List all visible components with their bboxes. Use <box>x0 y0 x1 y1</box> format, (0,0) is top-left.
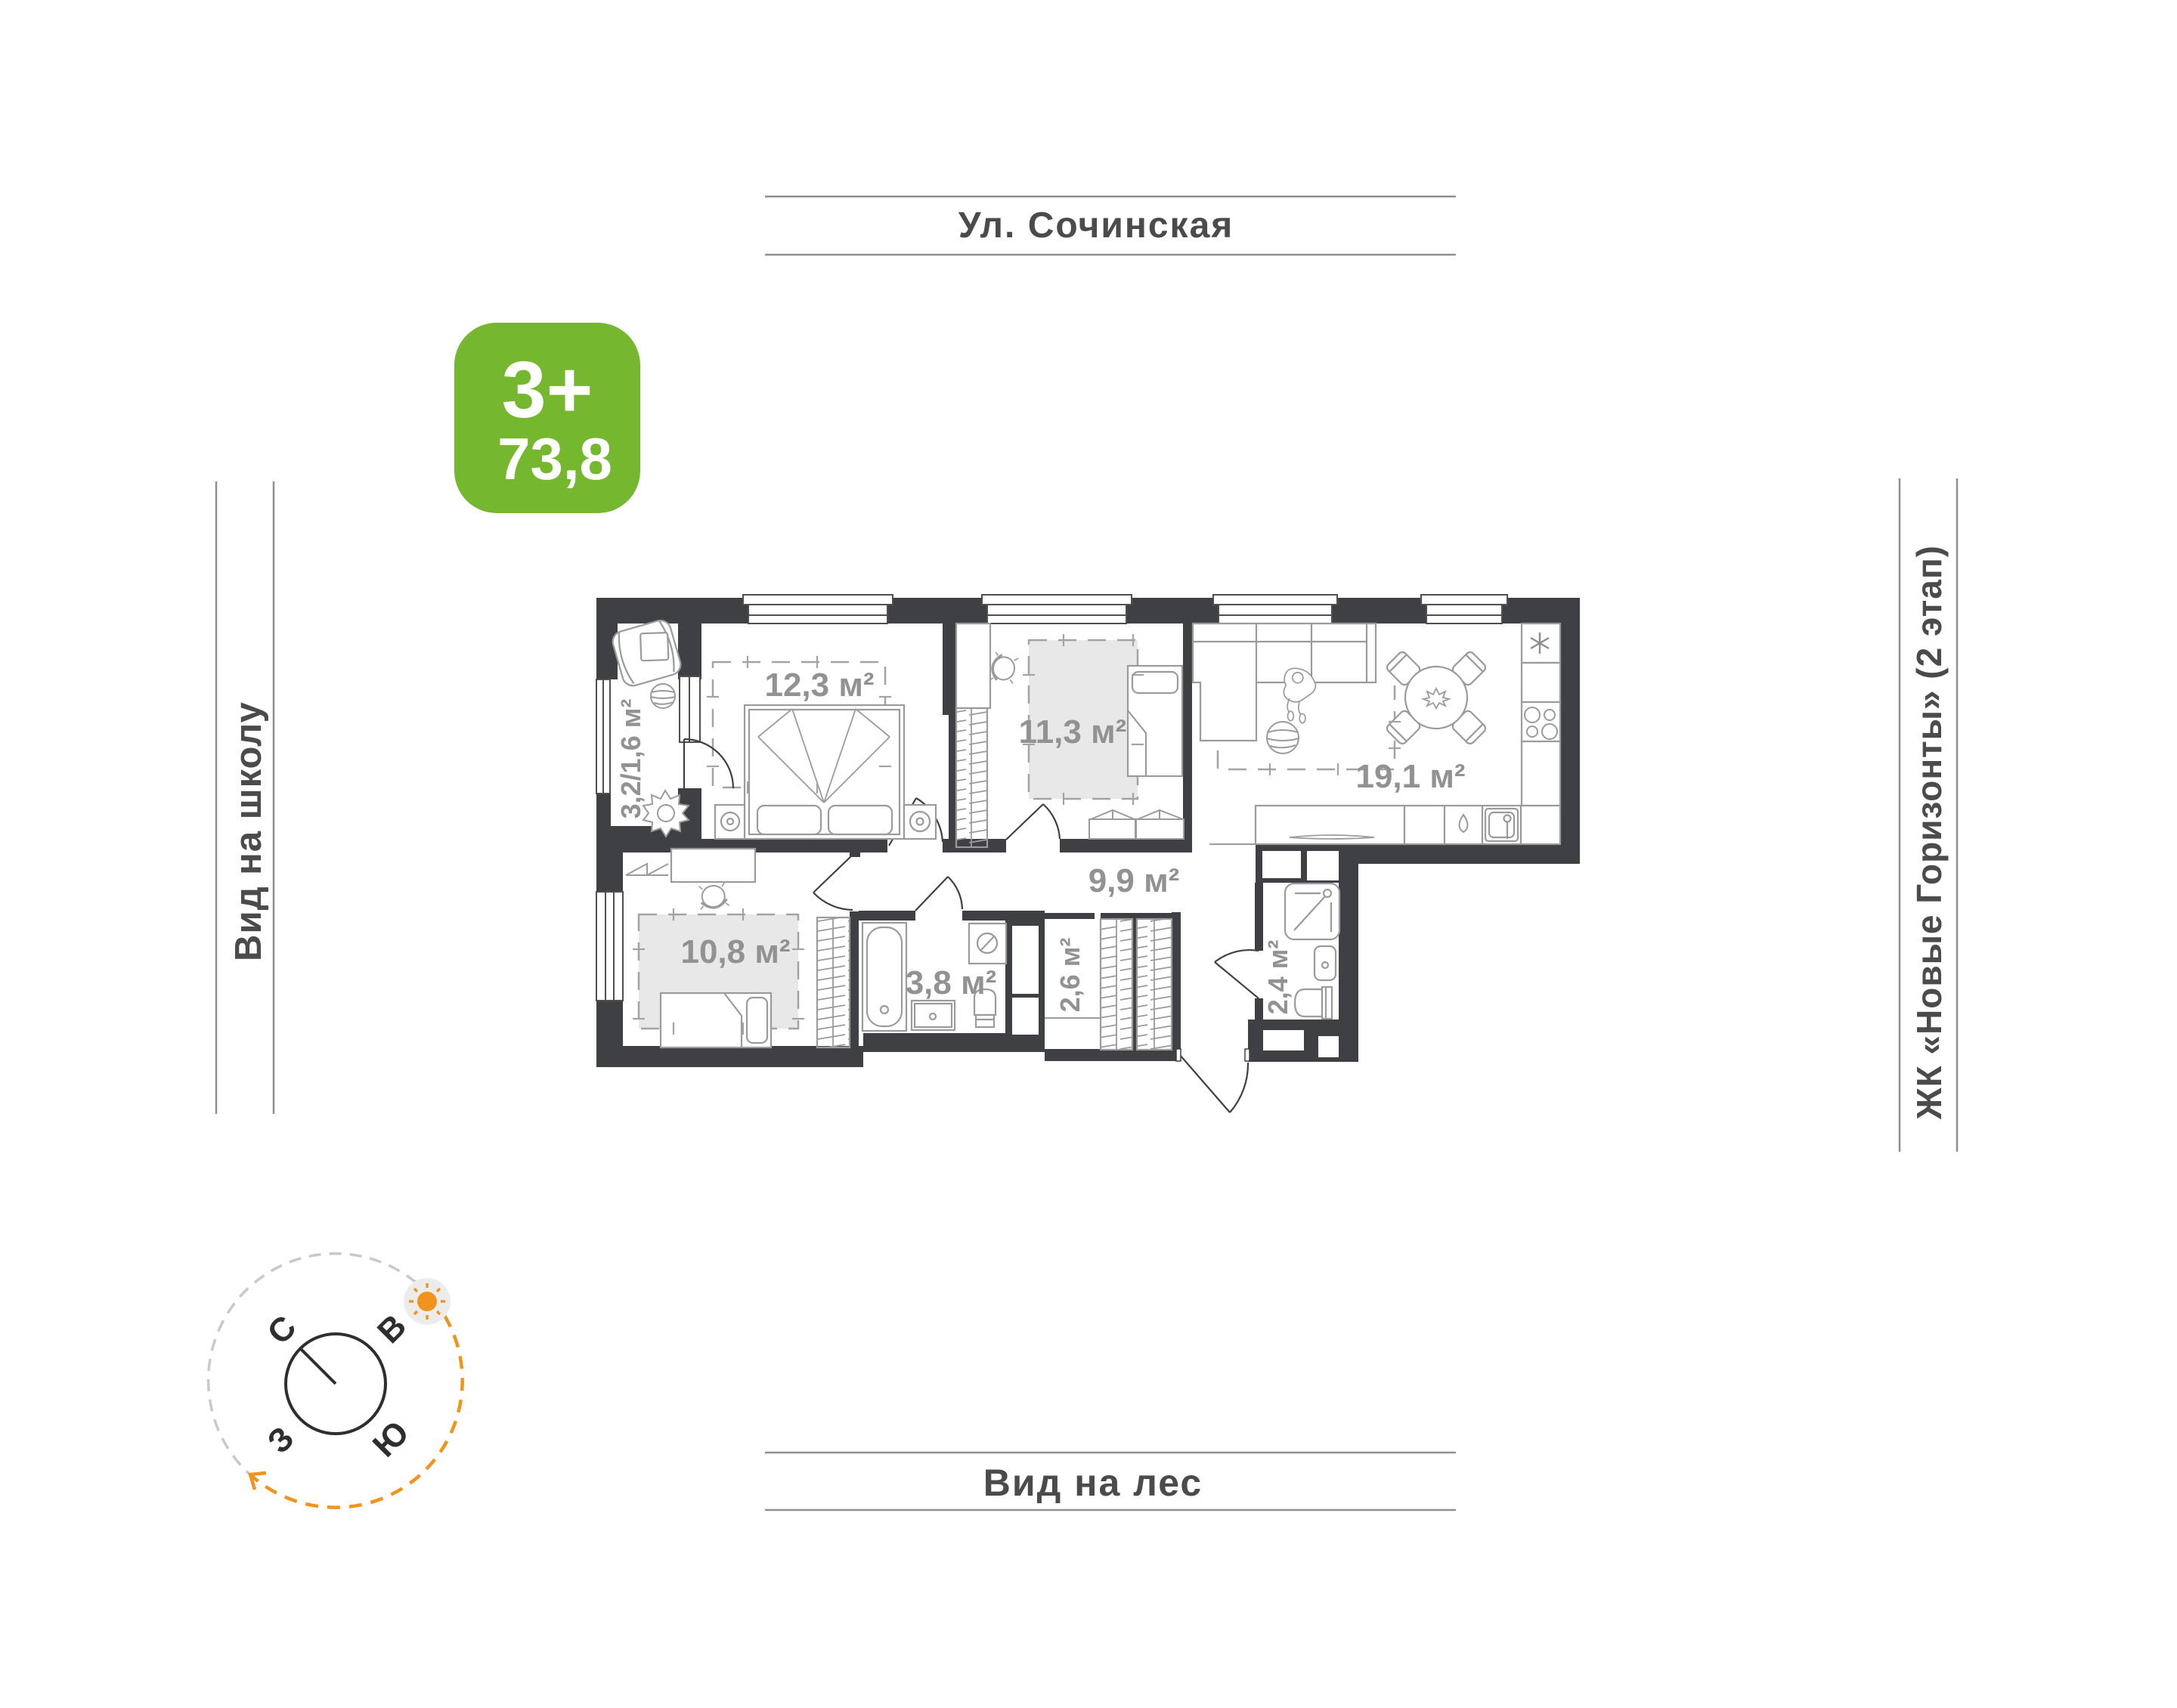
svg-text:3+: 3+ <box>502 345 593 435</box>
svg-text:3,8 м²: 3,8 м² <box>906 964 997 1001</box>
svg-text:ЖК «Новые Горизонты» (2 этап): ЖК «Новые Горизонты» (2 этап) <box>1909 545 1949 1120</box>
svg-text:Вид на лес: Вид на лес <box>983 1462 1203 1504</box>
svg-text:2,4 м²: 2,4 м² <box>1262 940 1293 1015</box>
svg-text:10,8 м²: 10,8 м² <box>680 933 790 970</box>
svg-text:3,2/1,6 м²: 3,2/1,6 м² <box>615 699 646 819</box>
svg-text:11,3 м²: 11,3 м² <box>1019 713 1127 750</box>
svg-text:2,6 м²: 2,6 м² <box>1054 938 1085 1013</box>
svg-text:Ул. Сочинская: Ул. Сочинская <box>958 206 1234 246</box>
svg-text:19,1 м²: 19,1 м² <box>1355 758 1465 795</box>
svg-text:12,3 м²: 12,3 м² <box>764 667 874 704</box>
svg-text:9,9 м²: 9,9 м² <box>1088 862 1180 899</box>
svg-text:Вид на школу: Вид на школу <box>228 701 269 961</box>
svg-text:73,8: 73,8 <box>497 425 612 492</box>
